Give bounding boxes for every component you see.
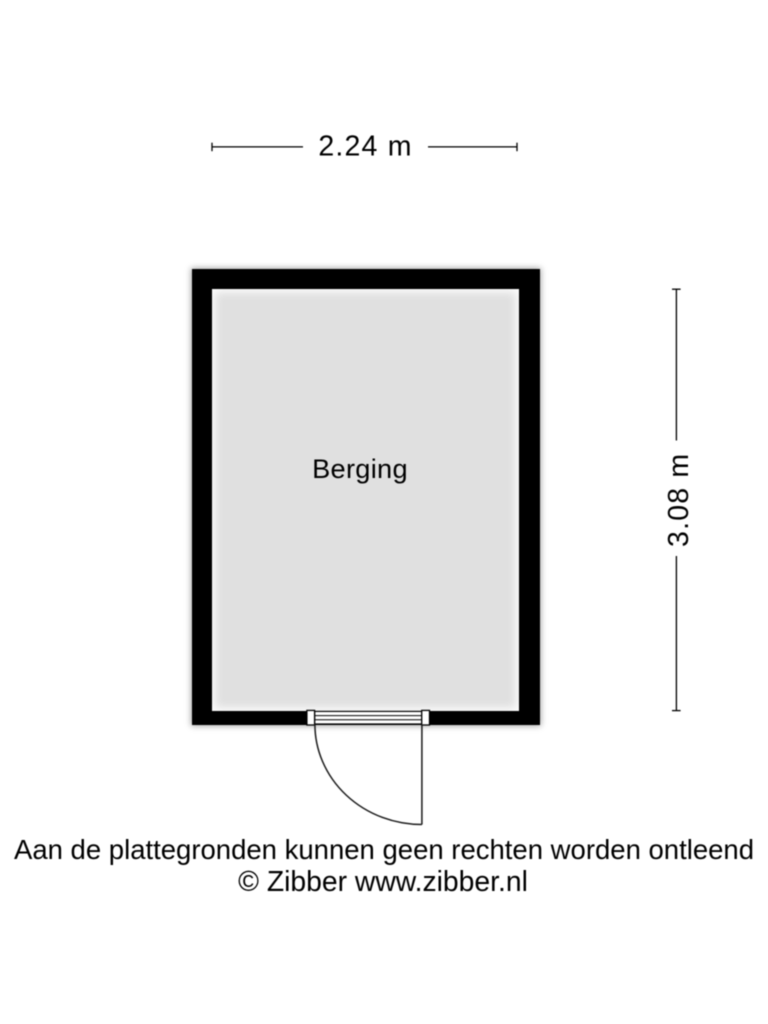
svg-text:2.24 m: 2.24 m [318,130,412,162]
svg-text:Aan de plattegronden kunnen ge: Aan de plattegronden kunnen geen rechten… [14,834,754,865]
svg-text:Berging: Berging [312,453,408,484]
svg-text:© Zibber www.zibber.nl: © Zibber www.zibber.nl [238,865,528,897]
svg-text:3.08 m: 3.08 m [663,453,695,547]
